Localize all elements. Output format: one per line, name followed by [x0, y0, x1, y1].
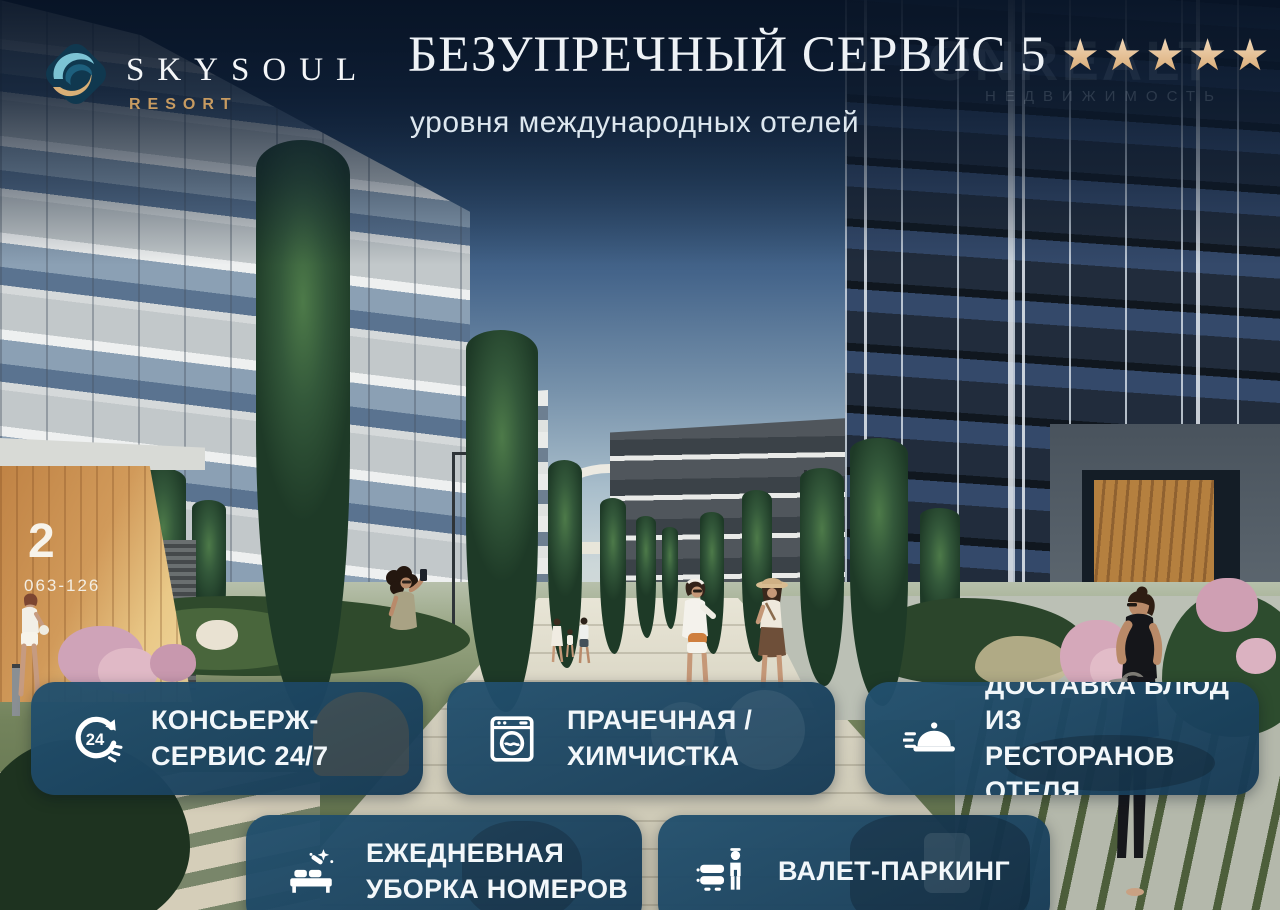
- bed-cleaning-icon: [284, 845, 338, 899]
- brand-subtitle: RESORT: [129, 96, 238, 114]
- five-star-rating: ★★★★★: [1060, 30, 1272, 81]
- service-card-laundry: ПРАЧЕЧНАЯ / ХИМЧИСТКА: [447, 682, 835, 795]
- service-card-food-delivery: ДОСТАВКА БЛЮД ИЗ РЕСТОРАНОВ ОТЕЛЯ: [865, 682, 1259, 795]
- building-number: 2: [28, 518, 55, 566]
- 24-7-concierge-icon: 24: [69, 712, 123, 766]
- page-title-row: БЕЗУПРЕЧНЫЙ СЕРВИС 5 ★★★★★: [408, 26, 1273, 84]
- resort-logo: [36, 34, 116, 119]
- service-card-concierge: 24 КОНСЬЕРЖ- СЕРВИС 24/7: [31, 682, 423, 795]
- promo-banner: 2 063-126: [0, 0, 1280, 910]
- service-card-valet: ВАЛЕТ-ПАРКИНГ: [658, 815, 1050, 910]
- food-cloche-icon: [903, 712, 957, 766]
- cypress-tree: [466, 330, 538, 712]
- family-walking: [548, 614, 620, 677]
- page-subtitle: уровня международных отелей: [410, 106, 859, 140]
- diamond-swirl-logo-icon: [36, 34, 116, 114]
- card-label: ДОСТАВКА БЛЮД ИЗ РЕСТОРАНОВ ОТЕЛЯ: [985, 682, 1259, 795]
- service-card-housekeeping: ЕЖЕДНЕВНАЯ УБОРКА НОМЕРОВ: [246, 815, 642, 910]
- card-label: ЕЖЕДНЕВНАЯ УБОРКА НОМЕРОВ: [366, 836, 628, 906]
- brand-name: SKYSOUL: [126, 52, 369, 89]
- svg-text:24: 24: [86, 730, 105, 749]
- card-label: ВАЛЕТ-ПАРКИНГ: [778, 854, 1010, 889]
- valet-parking-icon: [696, 845, 750, 899]
- card-label: ПРАЧЕЧНАЯ / ХИМЧИСТКА: [567, 703, 752, 773]
- lamp-post: [452, 452, 455, 652]
- person-taking-photo: [364, 566, 438, 675]
- washing-machine-icon: [485, 712, 539, 766]
- watermark-caption: НЕДВИЖИМОСТЬ: [985, 88, 1223, 105]
- cypress-tree: [850, 438, 908, 706]
- page-title: БЕЗУПРЕЧНЫЙ СЕРВИС 5: [408, 26, 1046, 84]
- card-label: КОНСЬЕРЖ- СЕРВИС 24/7: [151, 703, 328, 773]
